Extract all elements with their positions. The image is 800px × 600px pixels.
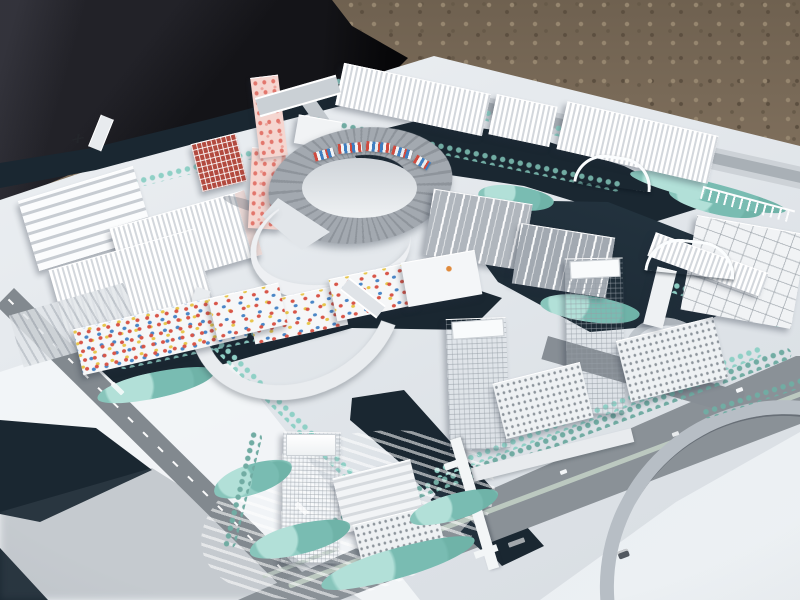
tower-left-roof bbox=[451, 318, 504, 340]
mosaic-wall-2 bbox=[338, 142, 363, 154]
photo-architectural-model bbox=[0, 0, 800, 600]
tower-right-roof bbox=[570, 259, 621, 280]
tower-south-crown bbox=[286, 434, 336, 456]
mosaic-wall-3 bbox=[366, 141, 391, 153]
